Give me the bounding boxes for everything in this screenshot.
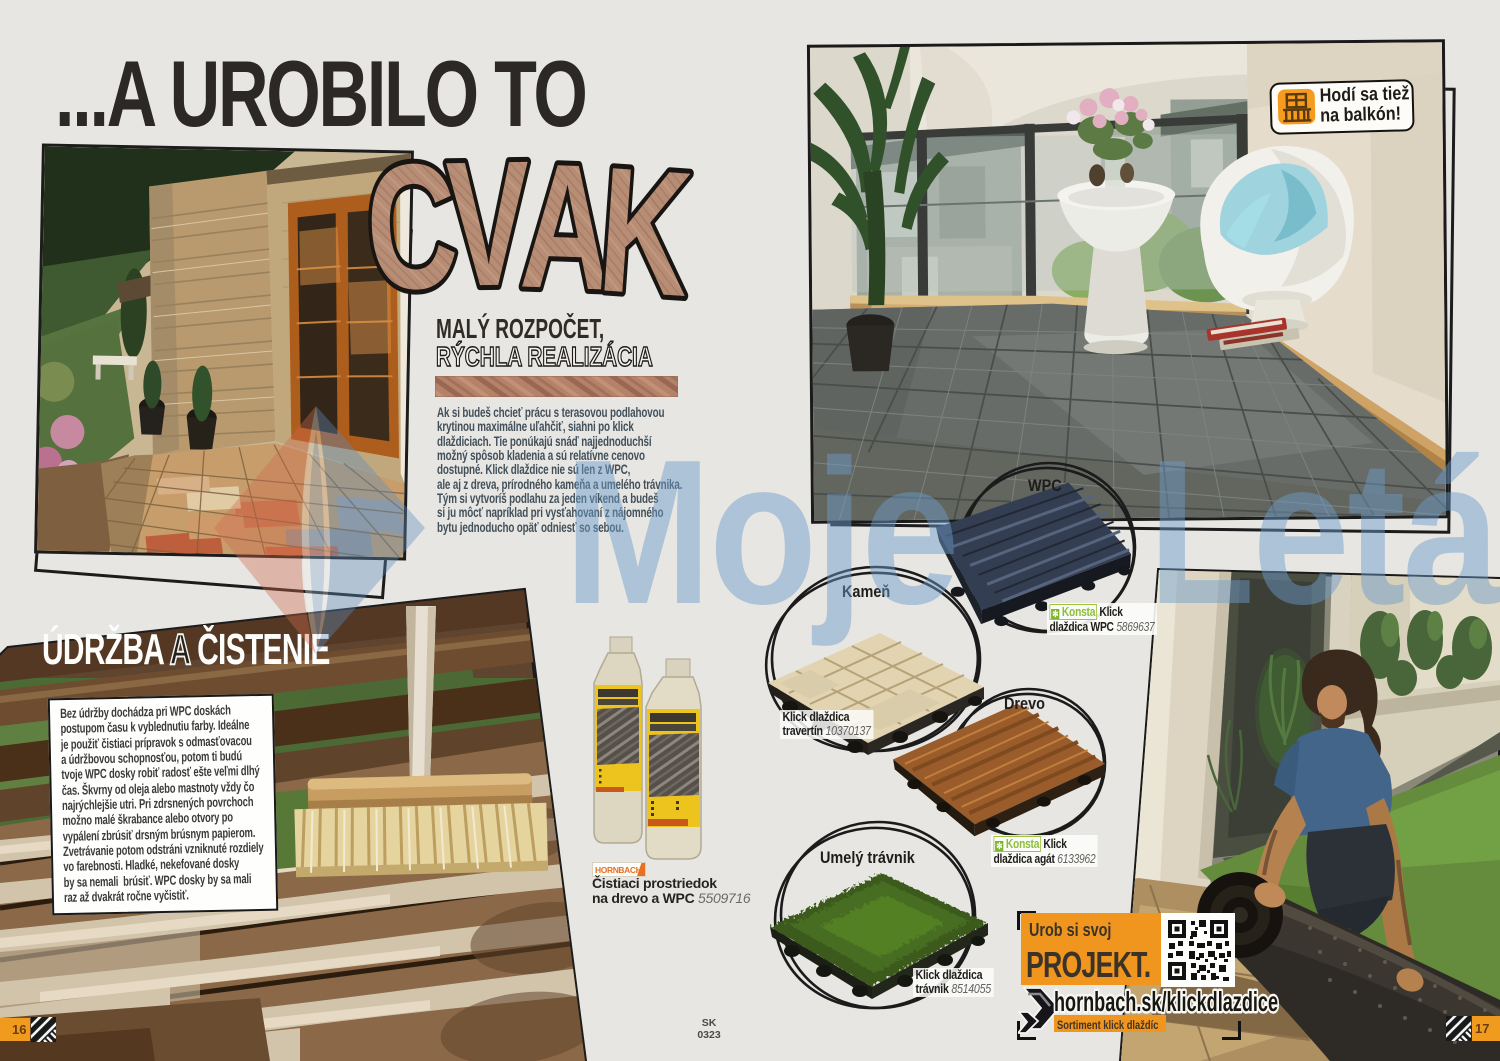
svg-text:V: V bbox=[445, 138, 532, 313]
svg-text:K: K bbox=[593, 138, 697, 313]
svg-text:hornbach.sk/klickdlazdice: hornbach.sk/klickdlazdice bbox=[1054, 986, 1278, 1017]
